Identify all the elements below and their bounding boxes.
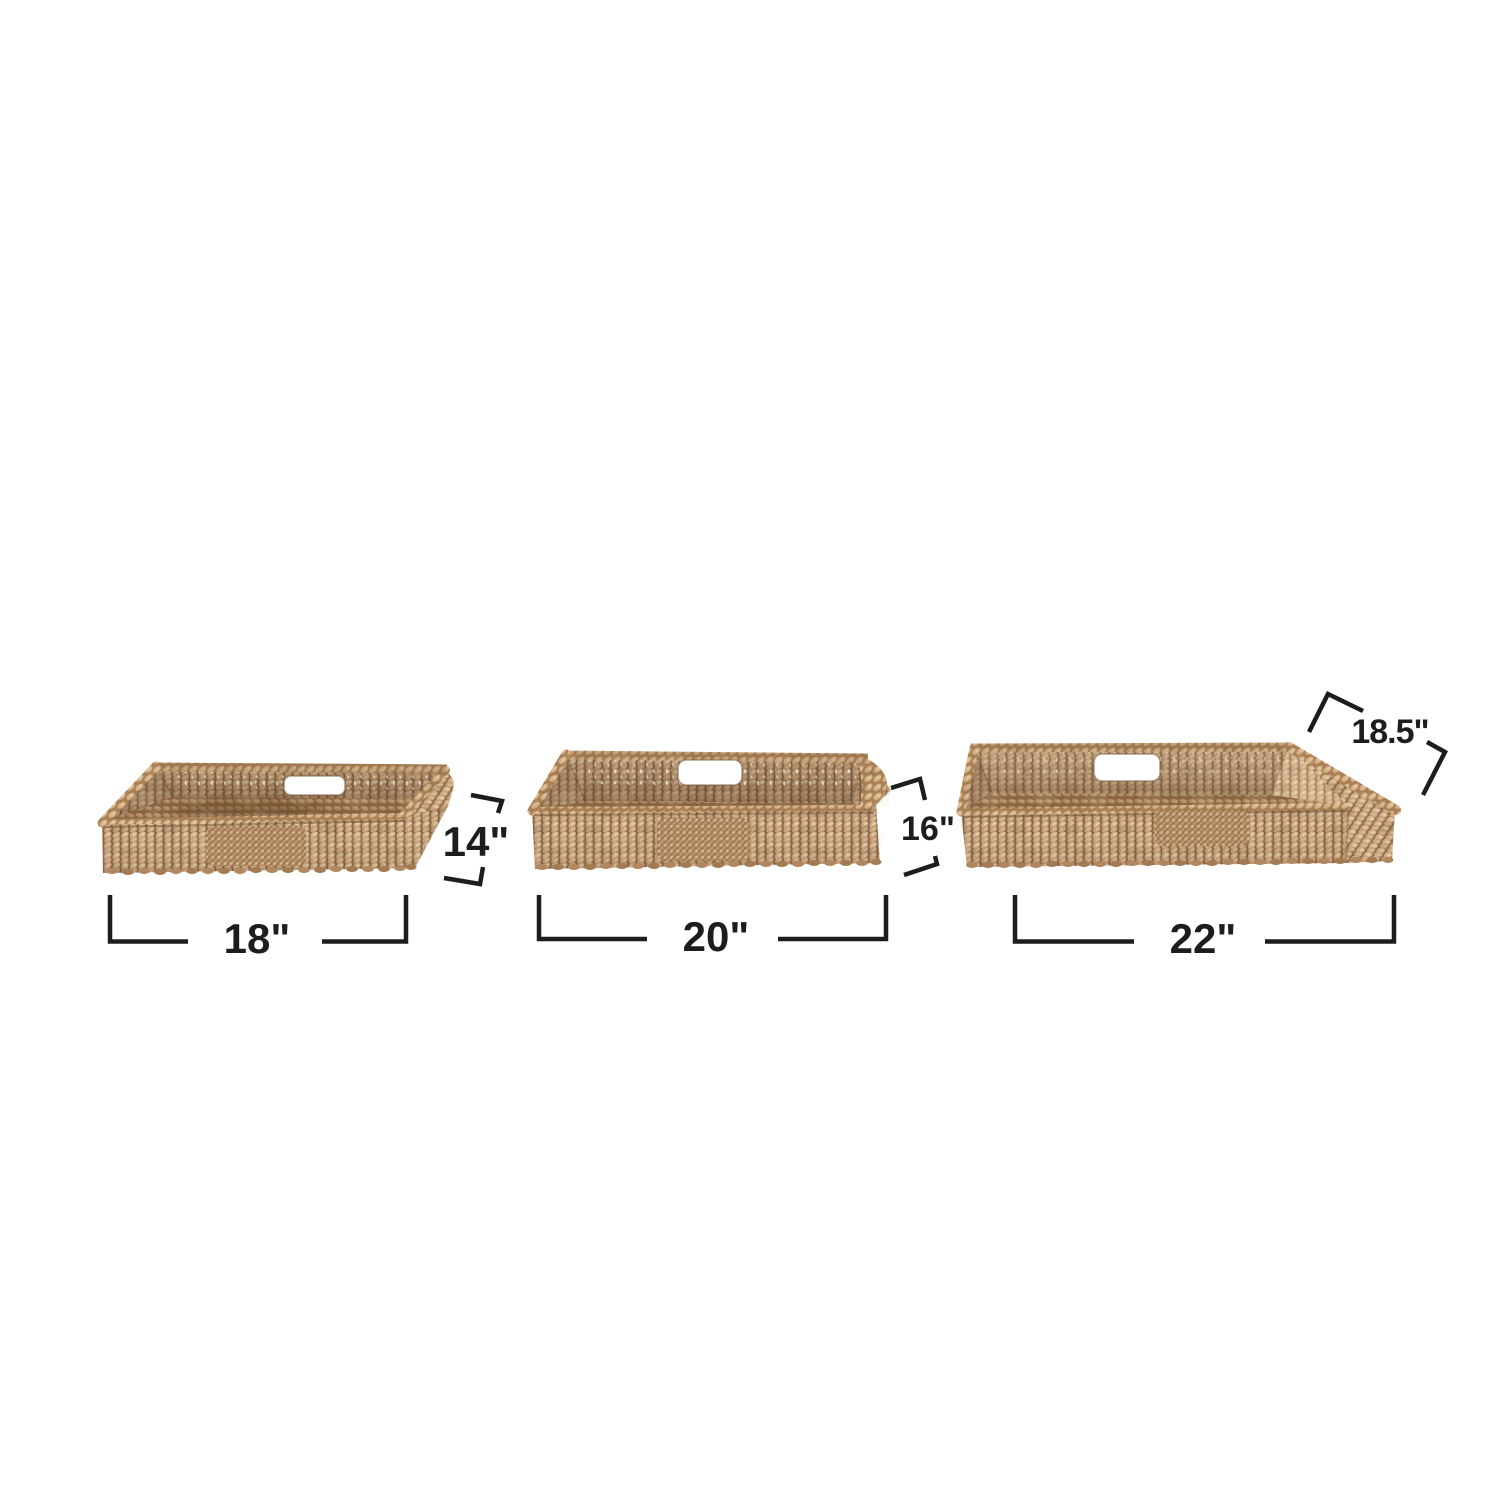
svg-text:16": 16"	[901, 810, 955, 848]
svg-text:14": 14"	[443, 818, 510, 865]
svg-text:20": 20"	[683, 913, 750, 960]
svg-text:18": 18"	[224, 915, 291, 962]
svg-text:18.5": 18.5"	[1351, 713, 1428, 751]
svg-text:22": 22"	[1170, 915, 1237, 962]
